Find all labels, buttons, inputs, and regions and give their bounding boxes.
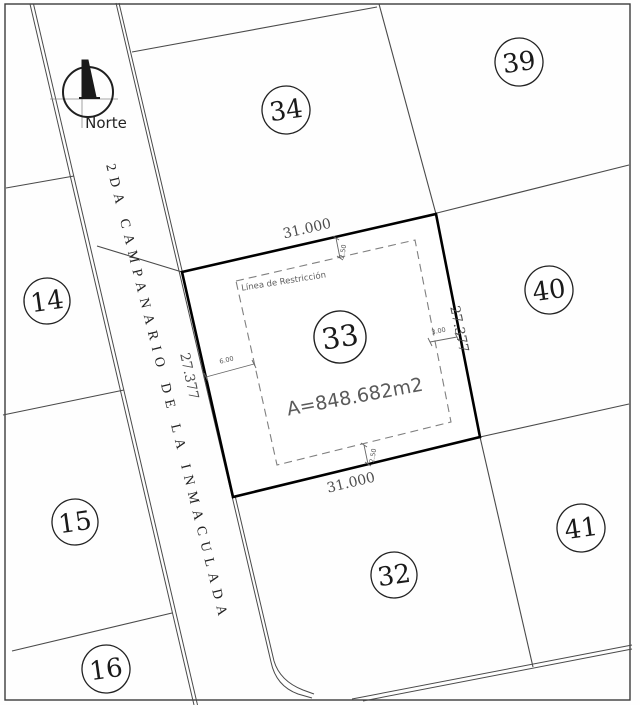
lot40-lot41-boundary-line <box>480 404 629 437</box>
lot40-badge: 40 <box>522 263 576 317</box>
lot16-number: 16 <box>88 653 125 687</box>
lot32-badge: 32 <box>368 549 420 601</box>
plan-drawing: 31.000 31.000 27.377 27.377 2.50 2.50 6.… <box>0 0 640 705</box>
street-left-edge-inner-line <box>34 4 198 705</box>
lot14-number: 14 <box>29 285 66 319</box>
lot39-number: 39 <box>501 46 538 80</box>
lot34-number: 34 <box>268 94 305 128</box>
lot16-badge: 16 <box>79 642 133 696</box>
lot15-lot16-boundary-line <box>12 613 172 651</box>
lot41-number: 41 <box>563 512 600 546</box>
lot39-badge: 39 <box>492 35 546 89</box>
street-left-edge-outer-line <box>30 4 194 705</box>
lot32-lot41-boundary-line <box>480 437 533 667</box>
lot14-lot15-boundary-line <box>3 390 124 415</box>
survey-plan-page: 31.000 31.000 27.377 27.377 2.50 2.50 6.… <box>0 0 640 705</box>
north-label: Norte <box>85 114 127 132</box>
lot34-lot39-boundary-line <box>379 4 436 214</box>
lot14-badge: 14 <box>21 275 73 327</box>
lot34-badge: 34 <box>259 83 313 137</box>
bottom-road-edge-inner-line <box>352 645 632 699</box>
lot41-badge: 41 <box>554 501 608 555</box>
lot15-badge: 15 <box>49 496 101 548</box>
bottom-road-edge-outer-line <box>363 649 632 701</box>
north-symbol: Norte <box>50 60 127 132</box>
lot32-number: 32 <box>376 559 413 593</box>
dim-left-label: 27.377 <box>176 351 201 401</box>
lot39-lot40-boundary-line <box>437 165 629 213</box>
lot40-number: 40 <box>531 274 568 308</box>
lot34-top-boundary-line <box>132 7 377 52</box>
lot14-top-boundary-line <box>6 176 74 188</box>
north-needle-icon <box>82 60 96 97</box>
lot15-number: 15 <box>57 506 94 540</box>
lot33-number: 33 <box>319 317 361 356</box>
